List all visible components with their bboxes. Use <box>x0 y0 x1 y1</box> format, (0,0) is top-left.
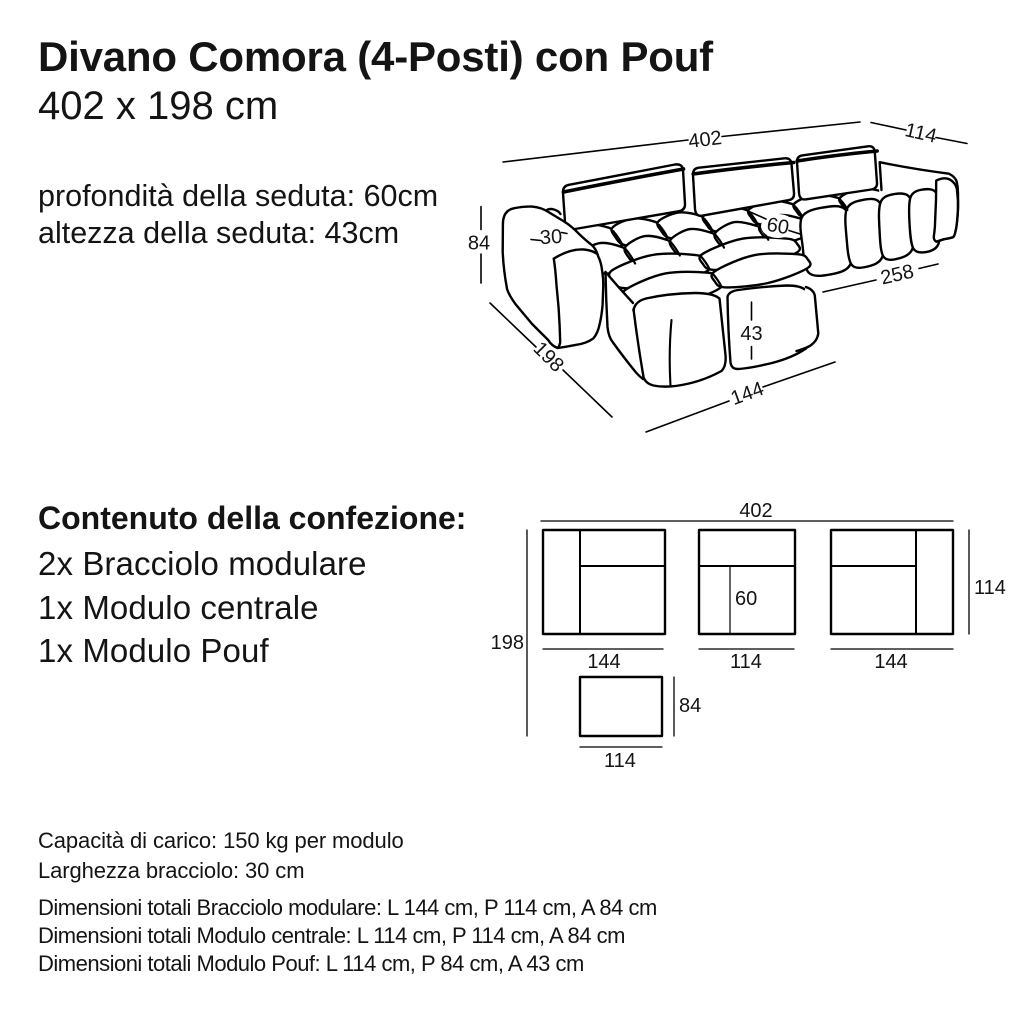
svg-text:60: 60 <box>735 588 757 610</box>
svg-text:114: 114 <box>730 651 762 673</box>
svg-text:114: 114 <box>903 119 939 148</box>
svg-text:402: 402 <box>687 127 723 153</box>
svg-text:402: 402 <box>739 500 772 522</box>
svg-text:144: 144 <box>587 651 620 673</box>
svg-text:258: 258 <box>878 261 915 290</box>
svg-text:30: 30 <box>539 226 563 249</box>
svg-text:144: 144 <box>728 378 767 410</box>
svg-text:198: 198 <box>491 632 524 654</box>
svg-text:114: 114 <box>604 750 636 772</box>
svg-text:144: 144 <box>874 651 907 673</box>
svg-text:43: 43 <box>740 323 762 345</box>
svg-text:114: 114 <box>974 577 1006 599</box>
svg-text:84: 84 <box>468 233 490 255</box>
svg-text:60: 60 <box>765 214 791 240</box>
svg-text:84: 84 <box>679 695 701 717</box>
